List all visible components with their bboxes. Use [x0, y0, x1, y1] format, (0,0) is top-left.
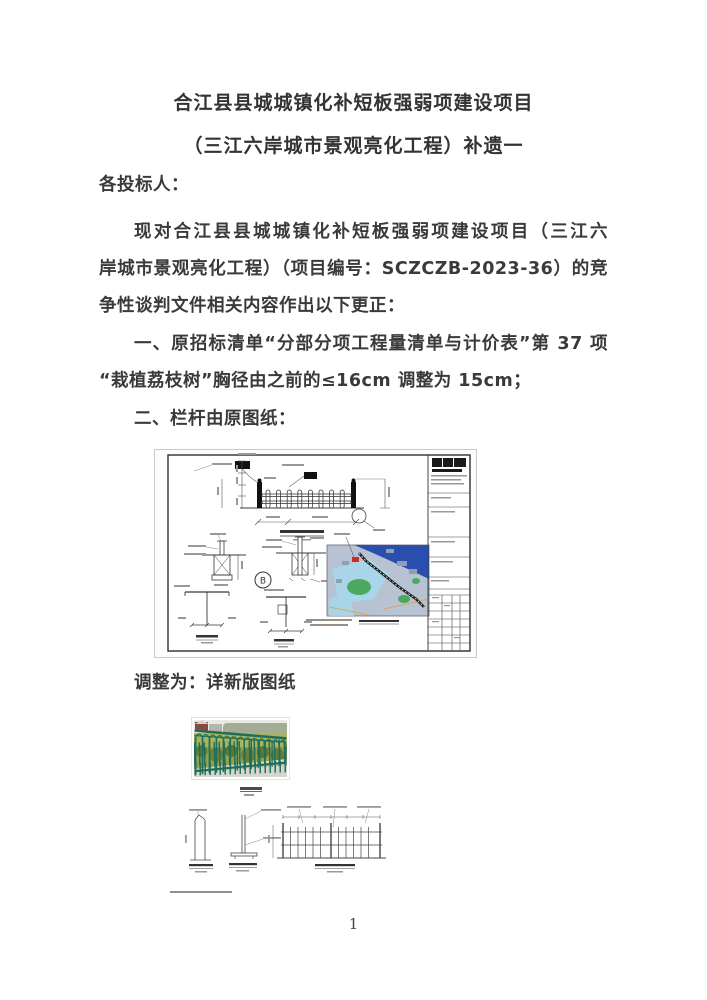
map-marker: [352, 557, 359, 562]
new-drawing-figure: [165, 805, 405, 900]
photo-caption-text: [240, 787, 262, 790]
new-post-detail: [185, 809, 213, 873]
new-drawing-note: [170, 891, 232, 893]
new-fence-elevation: [268, 806, 386, 873]
site-map-inset: [327, 533, 429, 624]
page-number: 1: [0, 915, 707, 933]
photo-caption-subtext: [244, 794, 254, 796]
photo-caption-underline: [240, 791, 262, 792]
paragraph-line: 争性谈判文件相关内容作出以下更正：: [99, 295, 608, 317]
adjustment-note: 调整为：详新版图纸: [99, 672, 608, 694]
paragraph-line: 现对合江县县城城镇化补短板强弱项建设项目（三江六: [99, 221, 608, 243]
fence-photo: [191, 717, 290, 780]
doc-title-line2: （三江六岸城市景观亮化工程）补遗一: [0, 131, 707, 158]
doc-title-line1: 合江县县城城镇化补短板强弱项建设项目: [0, 88, 707, 115]
original-drawing-svg: B: [154, 449, 477, 658]
fence-photo-image: [194, 720, 287, 777]
original-drawing-figure: B: [154, 449, 477, 658]
paragraph-line: 岸城市景观亮化工程）（项目编号：SCZCZB-2023-36）的竞: [99, 258, 608, 280]
item2-line: 二、栏杆由原图纸：: [99, 408, 608, 430]
detail-bubble-letter: B: [260, 577, 266, 587]
item1-line: 一、原招标清单“分部分项工程量清单与计价表”第 37 项: [99, 333, 608, 355]
salutation: 各投标人：: [99, 174, 608, 196]
document-page: 合江县县城城镇化补短板强弱项建设项目 （三江六岸城市景观亮化工程）补遗一 各投标…: [0, 0, 707, 1000]
item1-line: “栽植荔枝树”胸径由之前的≤16cm 调整为 15cm；: [99, 370, 608, 392]
new-drawing-svg: [165, 805, 405, 900]
photo-fence-frame: [194, 720, 287, 777]
